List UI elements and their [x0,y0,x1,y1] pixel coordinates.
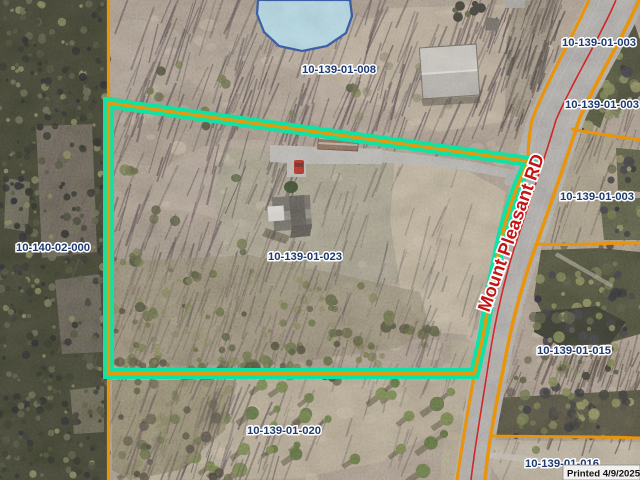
svg-text:10-139-01-015: 10-139-01-015 [537,345,611,357]
svg-text:10-139-01-003: 10-139-01-003 [560,191,634,203]
svg-text:10-140-02-000: 10-140-02-000 [16,242,90,254]
svg-text:10-139-01-008: 10-139-01-008 [302,64,376,76]
svg-text:Printed 4/9/2025: Printed 4/9/2025 [567,469,640,480]
svg-text:10-139-01-020: 10-139-01-020 [247,425,321,437]
svg-text:10-139-01-023: 10-139-01-023 [268,251,342,263]
svg-text:10-139-01-003: 10-139-01-003 [562,37,636,49]
svg-text:10-139-01-003: 10-139-01-003 [565,99,639,111]
